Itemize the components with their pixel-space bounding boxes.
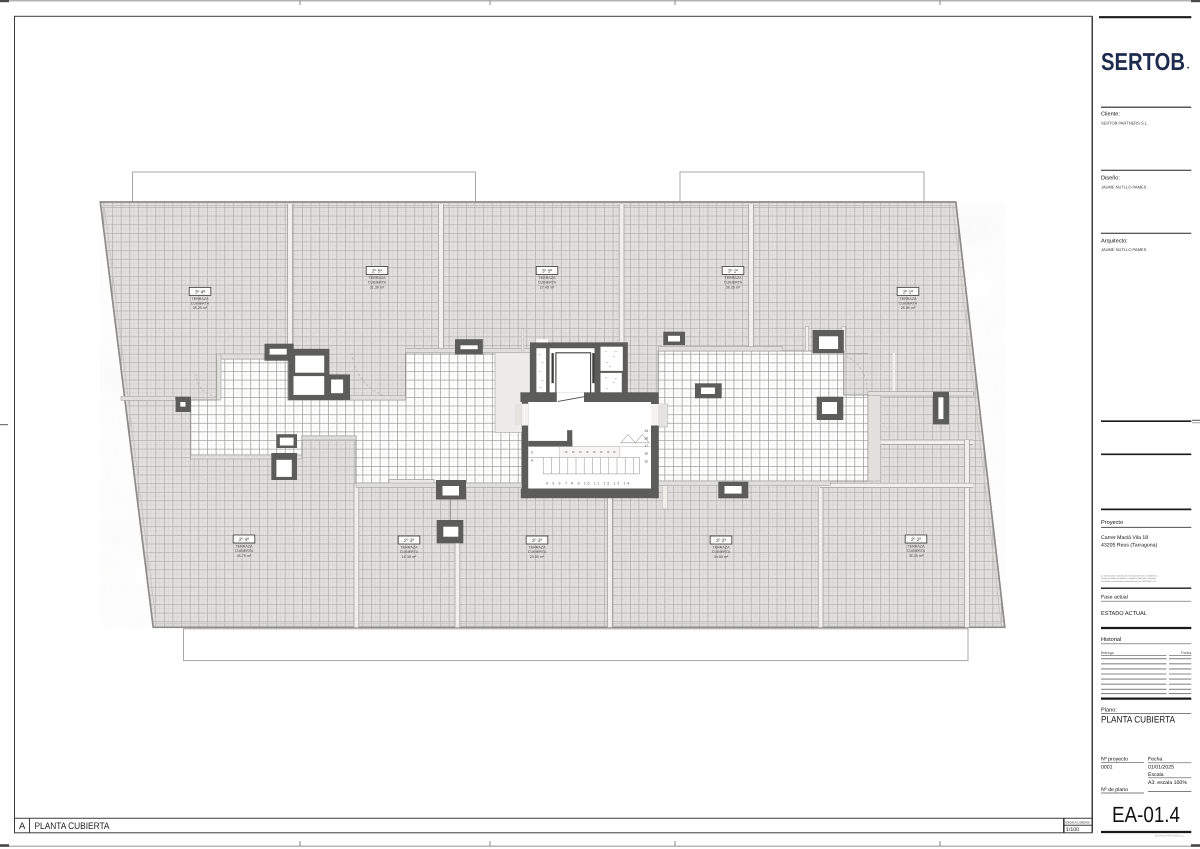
svg-text:EA-01.4: EA-01.4	[1112, 802, 1180, 827]
svg-text:TERRAZA: TERRAZA	[712, 546, 730, 550]
svg-text:CUBIERTA: CUBIERTA	[235, 549, 254, 553]
svg-text:Arquitecto:: Arquitecto:	[1101, 238, 1128, 245]
svg-text:18: 18	[644, 436, 648, 440]
svg-text:SERTOB: SERTOB	[1101, 49, 1185, 76]
svg-text:A: A	[19, 821, 26, 832]
svg-text:3º 3ª: 3º 3ª	[532, 538, 542, 544]
svg-text:2º 1ª: 2º 1ª	[903, 289, 913, 295]
svg-text:CUBIERTA: CUBIERTA	[712, 550, 731, 554]
svg-text:45.75 m²: 45.75 m²	[237, 554, 252, 558]
svg-text:Diseño:: Diseño:	[1101, 175, 1120, 182]
svg-text:Nº proyecto: Nº proyecto	[1101, 757, 1128, 763]
svg-text:TERRAZA: TERRAZA	[191, 297, 209, 301]
svg-text:3º 5ª: 3º 5ª	[542, 269, 552, 275]
svg-text:17: 17	[644, 444, 648, 448]
svg-text:Escala: Escala	[1148, 772, 1164, 778]
svg-text:JAUME NUTLLO PAMES: JAUME NUTLLO PAMES	[1101, 247, 1147, 252]
svg-text:16: 16	[644, 452, 648, 456]
svg-text:26.85 m²: 26.85 m²	[901, 306, 916, 310]
svg-text:Entrega: Entrega	[1101, 651, 1114, 655]
svg-text:Historial: Historial	[1101, 636, 1121, 643]
svg-text:TERRAZA: TERRAZA	[724, 276, 742, 280]
svg-text:Proyecto: Proyecto	[1101, 520, 1123, 526]
svg-text:CUBIERTA: CUBIERTA	[899, 301, 918, 305]
svg-text:1/100: 1/100	[1066, 827, 1079, 833]
svg-text:Queda prohibida su difusión y: Queda prohibida su difusión y queda en d…	[1101, 577, 1156, 580]
svg-text:SERTOB PARTNERS S.L.: SERTOB PARTNERS S.L.	[1154, 834, 1185, 837]
svg-text:19: 19	[644, 429, 648, 433]
svg-text:27.40 m²: 27.40 m²	[540, 285, 555, 289]
svg-text:3º 2ª: 3º 2ª	[716, 538, 726, 544]
svg-text:Fecha: Fecha	[1148, 757, 1163, 763]
svg-text:16.30 m²: 16.30 m²	[402, 555, 417, 559]
svg-text:3º 4ª: 3º 4ª	[195, 289, 205, 295]
svg-text:CUBIERTA: CUBIERTA	[368, 281, 387, 285]
svg-text:2º 2ª: 2º 2ª	[911, 537, 921, 543]
svg-text:CUBIERTA: CUBIERTA	[538, 281, 557, 285]
svg-text:ESTADO ACTUAL: ESTADO ACTUAL	[1101, 611, 1147, 617]
svg-text:CUBIERTA: CUBIERTA	[724, 281, 743, 285]
svg-text:PLANTA CUBIERTA: PLANTA CUBIERTA	[1101, 715, 1176, 725]
svg-text:01/01/2025: 01/01/2025	[1148, 765, 1174, 771]
svg-text:31.36 m²: 31.36 m²	[370, 285, 385, 289]
svg-text:ESCALA 1/100(A3): ESCALA 1/100(A3)	[1066, 821, 1090, 825]
svg-text:Cliente:: Cliente:	[1101, 111, 1120, 118]
svg-text:2º 3ª: 2º 3ª	[404, 538, 414, 544]
svg-text:0001: 0001	[1101, 765, 1113, 771]
svg-text:Fecha: Fecha	[1181, 651, 1191, 655]
svg-text:43205 Reus (Tarragona): 43205 Reus (Tarragona)	[1101, 543, 1158, 549]
svg-text:Nº de plano: Nº de plano	[1101, 787, 1128, 793]
svg-text:TERRAZA: TERRAZA	[899, 297, 917, 301]
svg-text:Carrer Macià Vila 18: Carrer Macià Vila 18	[1101, 535, 1148, 541]
svg-text:36.25 m²: 36.25 m²	[726, 285, 741, 289]
svg-text:TERRAZA: TERRAZA	[528, 546, 546, 550]
svg-text:JAUME NUTLLO PAMES: JAUME NUTLLO PAMES	[1101, 185, 1147, 190]
svg-text:Fase actual: Fase actual	[1101, 595, 1128, 601]
svg-text:SERTOB PARTNERS S.L.: SERTOB PARTNERS S.L.	[1101, 121, 1148, 126]
svg-text:34.00 m²: 34.00 m²	[714, 555, 729, 559]
svg-text:TERRAZA: TERRAZA	[235, 545, 253, 549]
svg-text:35.25 m²: 35.25 m²	[193, 306, 208, 310]
svg-text:uso distinto al autorizado exp: uso distinto al autorizado expresamente …	[1101, 580, 1157, 583]
svg-text:15: 15	[644, 460, 648, 464]
svg-text:4: 4	[531, 459, 533, 463]
svg-text:2º 4ª: 2º 4ª	[239, 537, 249, 543]
svg-text:4 5 6 7 8 9 10 11 12 13 14: 4 5 6 7 8 9 10 11 12 13 14	[546, 482, 629, 486]
svg-text:TERRAZA: TERRAZA	[368, 276, 386, 280]
svg-text:CUBIERTA: CUBIERTA	[528, 550, 547, 554]
svg-text:CUBIERTA: CUBIERTA	[400, 550, 419, 554]
svg-text:TERRAZA: TERRAZA	[907, 545, 925, 549]
svg-text:Plano:: Plano:	[1101, 707, 1117, 714]
svg-text:23.05 m²: 23.05 m²	[530, 555, 545, 559]
svg-text:3: 3	[531, 451, 533, 455]
svg-text:TERRAZA: TERRAZA	[538, 276, 556, 280]
svg-text:36.35 m²: 36.35 m²	[909, 554, 924, 558]
svg-text:3º 1ª: 3º 1ª	[728, 269, 738, 275]
svg-text:La información contenida en es: La información contenida en este documen…	[1101, 575, 1158, 578]
svg-text:CUBIERTA: CUBIERTA	[907, 549, 926, 553]
svg-text:PLANTA CUBIERTA: PLANTA CUBIERTA	[35, 821, 111, 832]
svg-text:A3: escala 100%: A3: escala 100%	[1148, 780, 1187, 786]
svg-text:TERRAZA: TERRAZA	[400, 546, 418, 550]
svg-text:2º 5ª: 2º 5ª	[372, 269, 382, 275]
svg-text:CUBIERTA: CUBIERTA	[191, 301, 210, 305]
